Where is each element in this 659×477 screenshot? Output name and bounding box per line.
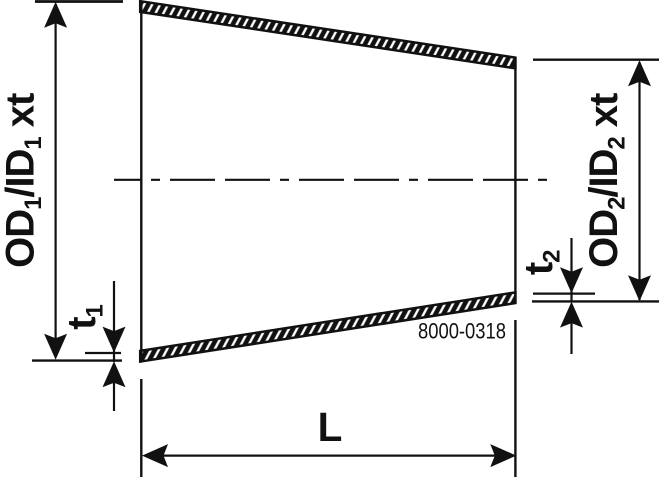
svg-text:8000-0318: 8000-0318 <box>418 319 506 344</box>
svg-text:L: L <box>318 404 343 450</box>
svg-text:t2: t2 <box>517 250 566 275</box>
svg-text:t1: t1 <box>60 305 109 330</box>
svg-text:OD2/ID2 xt: OD2/ID2 xt <box>582 93 631 268</box>
svg-text:OD1/ID1 xt: OD1/ID1 xt <box>0 93 47 268</box>
